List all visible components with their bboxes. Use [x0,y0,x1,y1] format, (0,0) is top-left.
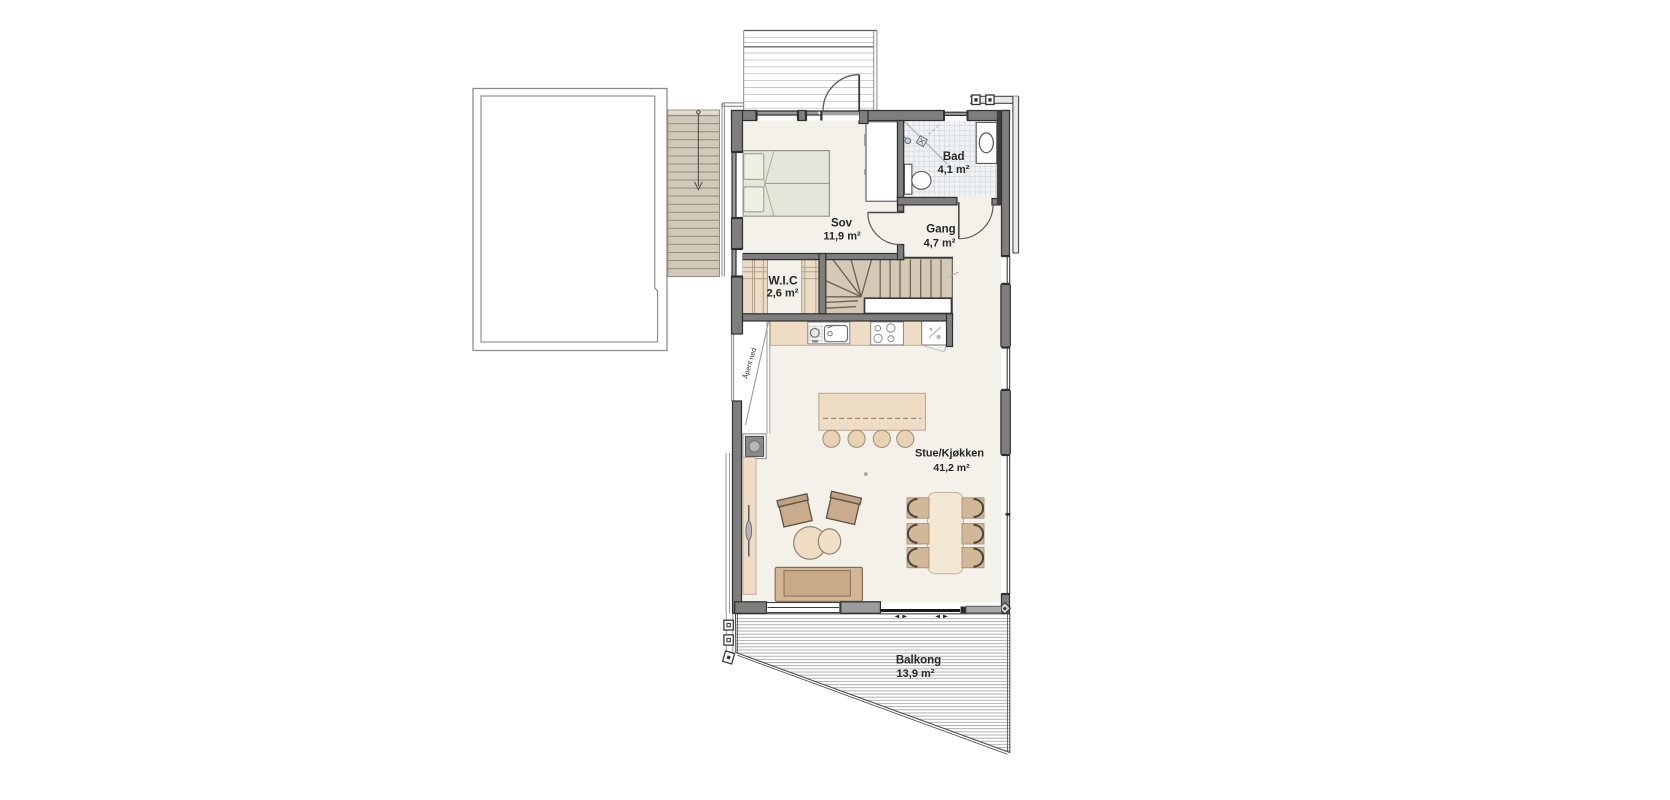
svg-text:4,7 m²: 4,7 m² [924,238,956,250]
svg-text:Balkong: Balkong [896,655,941,667]
svg-text:Sov: Sov [831,218,853,230]
svg-text:13,9 m²: 13,9 m² [897,668,935,680]
svg-text:11,9 m²: 11,9 m² [823,230,861,242]
svg-text:Bad: Bad [943,151,965,163]
svg-text:2,6 m²: 2,6 m² [767,288,799,300]
svg-text:Stue/Kjøkken: Stue/Kjøkken [915,448,984,460]
svg-text:4,1 m²: 4,1 m² [938,164,970,176]
svg-text:W.I.C: W.I.C [768,273,798,287]
svg-text:Gang: Gang [926,224,955,236]
svg-text:41,2 m²: 41,2 m² [933,462,970,474]
